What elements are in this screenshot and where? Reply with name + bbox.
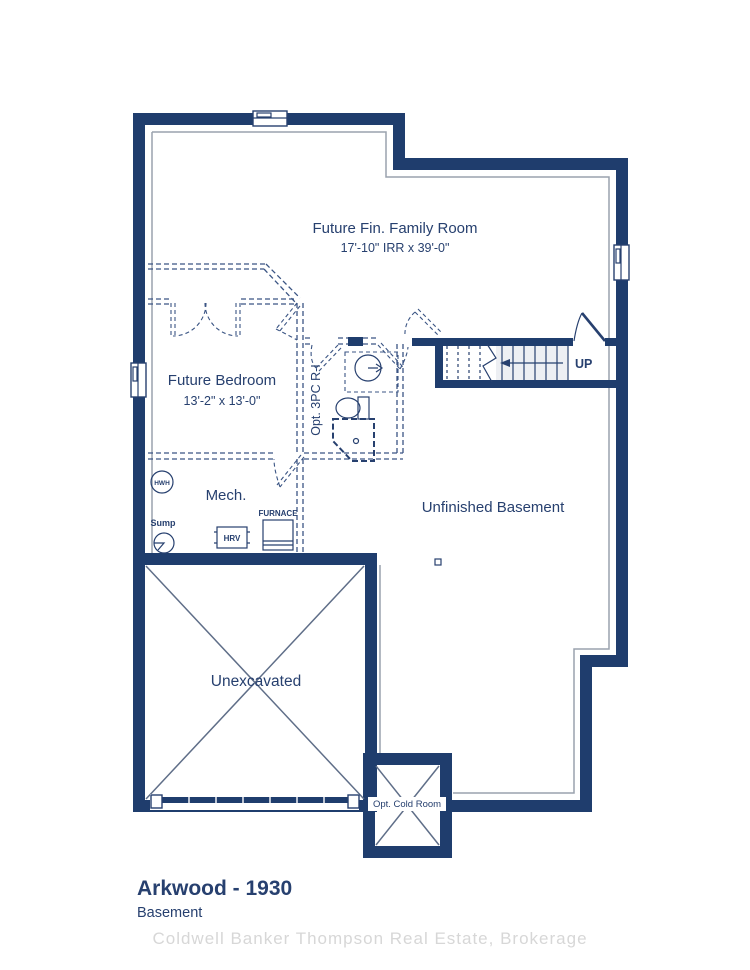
mech-door (274, 455, 304, 487)
window-top (253, 111, 287, 126)
hrv-icon: HRV (214, 527, 250, 548)
hwh-label: HWH (154, 480, 170, 487)
window-right (614, 245, 629, 280)
title-block: Arkwood - 1930 Basement (137, 877, 292, 921)
hrv-label: HRV (224, 534, 241, 543)
staircase: UP (447, 344, 592, 382)
plan-subtitle: Basement (137, 905, 202, 921)
bedroom-dims: 13'-2" x 13'-0" (184, 394, 261, 408)
sump-icon: Sump (150, 518, 176, 553)
stair-break-line (483, 344, 496, 382)
sump-label: Sump (150, 518, 176, 528)
unexcavated-label: Unexcavated (211, 673, 301, 690)
mech-label: Mech. (206, 487, 247, 504)
family-room-door (405, 309, 441, 337)
up-label: UP (575, 357, 592, 371)
furnace-label: FURNACE (258, 509, 298, 518)
window-left (131, 363, 146, 397)
family-room-label: Future Fin. Family Room (312, 220, 477, 237)
furnace-icon: FURNACE (258, 509, 298, 550)
plan-title: Arkwood - 1930 (137, 877, 292, 900)
brokerage-watermark: Coldwell Banker Thompson Real Estate, Br… (152, 929, 587, 948)
unfinished-basement-label: Unfinished Basement (422, 499, 565, 516)
closet-double-doors (171, 303, 240, 336)
garage-door (150, 794, 359, 810)
cold-room: Opt. Cold Room (368, 766, 446, 845)
column-post (435, 559, 441, 565)
bedroom-label: Future Bedroom (168, 372, 276, 389)
stair-landing-door (574, 313, 605, 341)
shower-icon (333, 419, 374, 461)
bathroom-label: Opt. 3PC R-I (309, 364, 323, 436)
floor-plan-drawing: UP (0, 0, 750, 970)
cold-room-label: Opt. Cold Room (373, 799, 441, 810)
hwh-icon: HWH (151, 471, 173, 493)
family-room-dims: 17'-10" IRR x 39'-0" (341, 241, 450, 255)
floor-plan-page: UP (0, 0, 750, 970)
toilet-icon (336, 397, 369, 419)
unexcavated-area: Unexcavated (146, 566, 364, 799)
